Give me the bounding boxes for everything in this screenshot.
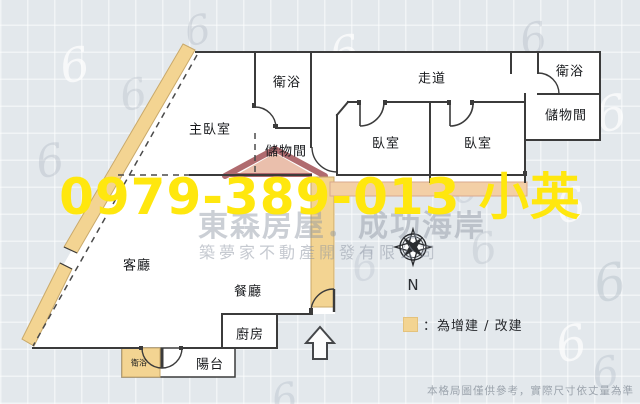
company-name-watermark: 築夢家不動產開發有限公司 — [199, 239, 439, 263]
floorplan-image: 6666666666666666 — [0, 0, 640, 404]
room-label-hallway: 走道 — [418, 68, 446, 87]
room-label-kitchen: 廚房 — [236, 324, 264, 343]
room-label-bathroom-right: 衛浴 — [556, 61, 584, 80]
legend-label: ：為增建 / 改建 — [423, 315, 523, 334]
entry-arrow-icon — [306, 327, 334, 359]
room-label-bathroom-top: 衛浴 — [273, 72, 301, 91]
legend-addition-swatch — [403, 317, 418, 332]
phone-watermark: 0979-389-013 小英 — [59, 157, 581, 229]
legend: ：為增建 / 改建 — [403, 315, 523, 334]
room-label-balcony: 陽台 — [196, 354, 224, 373]
room-label-master-bedroom: 主臥室 — [189, 119, 231, 138]
disclaimer-text: 本格局圖僅供參考，實際尺寸依丈量為準 — [427, 383, 634, 398]
room-label-dining-room: 餐廳 — [234, 281, 262, 300]
compass-north-label: N — [407, 276, 418, 294]
room-label-bathroom-small: 衛浴 — [131, 358, 147, 369]
room-label-storage-right: 儲物間 — [545, 105, 587, 124]
room-label-bedroom-1: 臥室 — [372, 133, 400, 152]
room-label-living-room: 客廳 — [123, 255, 151, 274]
room-label-bedroom-2: 臥室 — [464, 133, 492, 152]
